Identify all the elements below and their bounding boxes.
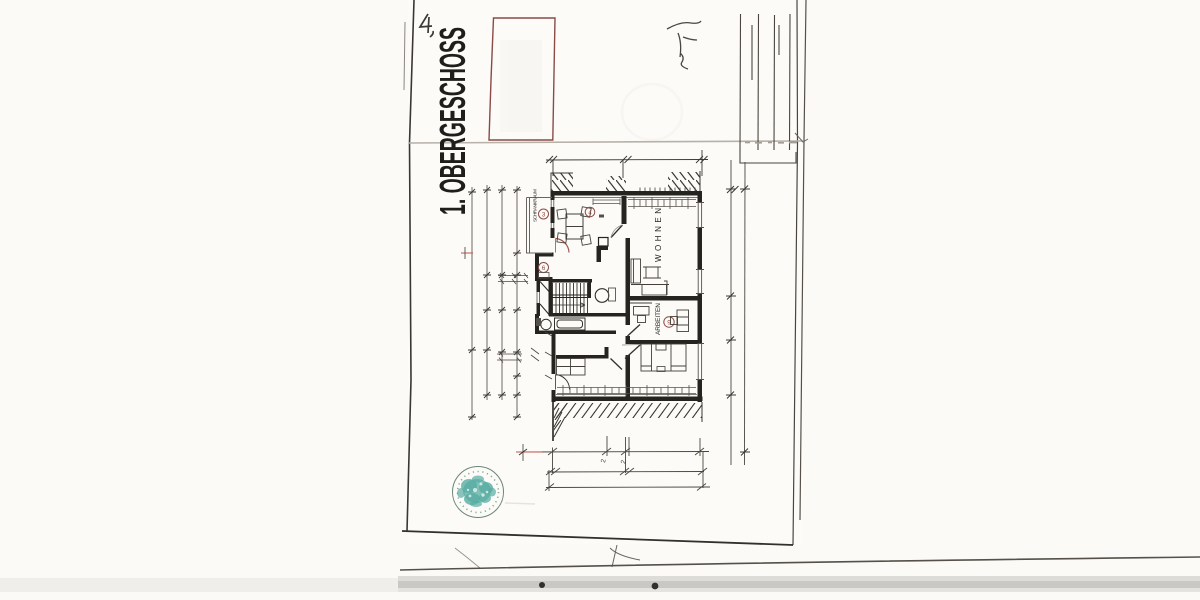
svg-text:6: 6 <box>542 265 546 272</box>
svg-text:ARBEITEN: ARBEITEN <box>655 303 662 335</box>
svg-text:SCHRANKRAUM: SCHRANKRAUM <box>533 189 539 222</box>
svg-text:3: 3 <box>542 211 546 218</box>
svg-text:1. OBERGESCHOSS: 1. OBERGESCHOSS <box>432 27 473 215</box>
